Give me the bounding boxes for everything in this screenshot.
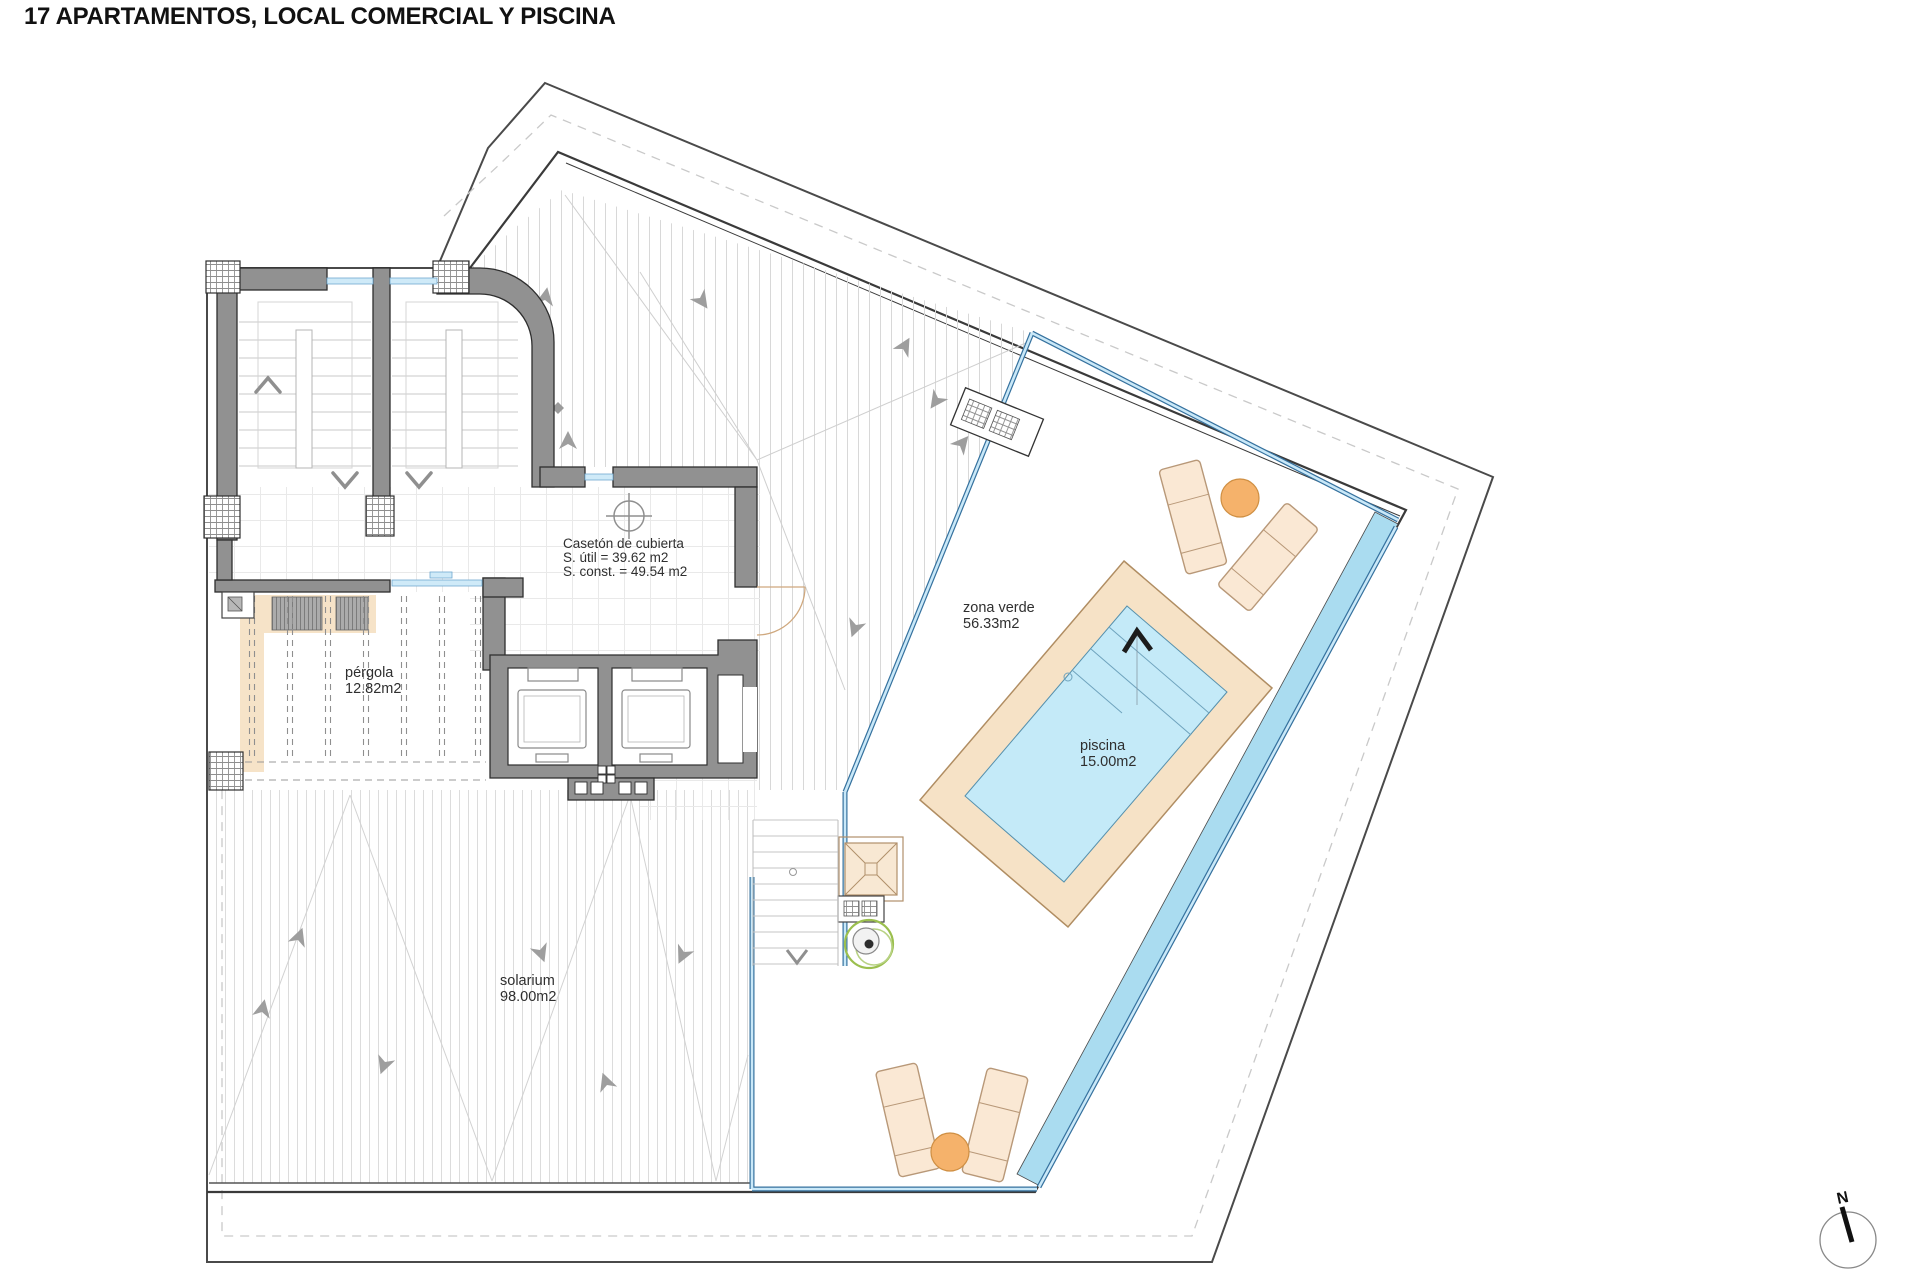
solarium-area [209, 790, 748, 1183]
zona-verde-label: zona verde [963, 600, 1035, 616]
caseton-top-wall [613, 467, 757, 487]
floor-plan-drawing: Casetón de cubierta S. útil = 39.62 m2 S… [0, 0, 1920, 1280]
caseton-label-line1: Casetón de cubierta [563, 536, 684, 551]
piscina-area: 15.00m2 [1080, 754, 1136, 770]
side-table [931, 1133, 969, 1171]
pergola-label: pérgola [345, 665, 394, 681]
caseton-label-line3: S. const. = 49.54 m2 [563, 564, 687, 579]
left-wall-stub [217, 540, 232, 580]
caseton-wall-stub [540, 467, 585, 487]
solarium-area: 98.00m2 [500, 989, 556, 1005]
outdoor-shower [839, 837, 903, 901]
rooftop-utility-box [222, 592, 254, 618]
stair-stringer [296, 330, 312, 468]
vent-box-small [838, 896, 884, 922]
stair-stringer [446, 330, 462, 468]
piscina-label: piscina [1080, 738, 1126, 754]
floor-plan-page: Casetón de cubierta S. útil = 39.62 m2 S… [0, 0, 1920, 1280]
solarium-label: solarium [500, 973, 555, 989]
pergola-area: 12.82m2 [345, 681, 401, 697]
caseton-right-wall [735, 487, 757, 587]
stairwell-divider-wall [373, 268, 390, 508]
pergola-deck-strip-v [240, 595, 264, 772]
caseton-left-wall-cap [483, 578, 523, 597]
caseton-label-line2: S. útil = 39.62 m2 [563, 550, 668, 565]
page-title: 17 APARTAMENTOS, LOCAL COMERCIAL Y PISCI… [24, 3, 615, 30]
zona-verde-area: 56.33m2 [963, 616, 1019, 632]
pergola-top-wall [215, 580, 390, 592]
pergola-panel [272, 597, 322, 630]
side-table [1221, 479, 1259, 517]
